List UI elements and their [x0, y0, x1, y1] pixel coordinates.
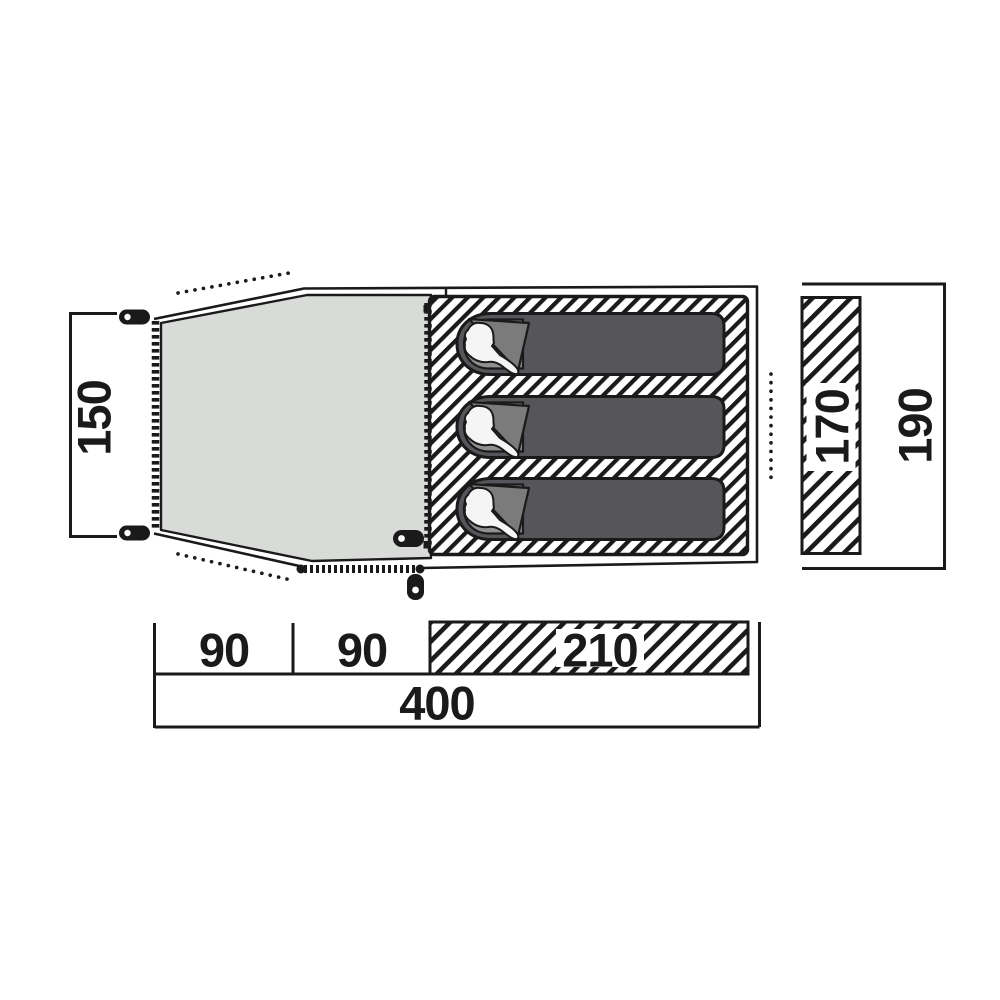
zipper-end-stop-left	[297, 565, 306, 574]
sleeping-bag-3	[457, 479, 724, 540]
dimension-label-190: 190	[889, 388, 942, 463]
tent-peg-top-left	[119, 310, 150, 325]
sleeping-bag-2	[457, 397, 724, 458]
dimension-label-210: 210	[562, 624, 637, 677]
dimension-label-400: 400	[399, 677, 474, 730]
sleeping-bag-1	[457, 314, 724, 375]
tent-peg-bottom-left	[119, 526, 150, 541]
guyline-dots-top-left	[178, 273, 289, 293]
dimension-label-90-front: 90	[199, 624, 249, 677]
dimension-label-90-mid: 90	[337, 624, 387, 677]
zipper-end-stop-right	[416, 565, 425, 574]
inner-tent-toggle-top	[424, 305, 432, 313]
dimension-label-150: 150	[68, 380, 121, 455]
guyline-dots-bottom-left	[178, 554, 291, 580]
inner-tent-toggle-bottom	[424, 541, 432, 549]
tent-porch-area	[161, 295, 431, 561]
floorplan-svg: 150 170 190 90 90 210 400	[0, 0, 1000, 1000]
zipper-pull-porch	[393, 530, 424, 547]
zipper-pull-bottom	[407, 574, 424, 600]
tent-floorplan-diagram: 150 170 190 90 90 210 400	[0, 0, 1000, 1000]
dimension-label-170: 170	[806, 389, 859, 464]
